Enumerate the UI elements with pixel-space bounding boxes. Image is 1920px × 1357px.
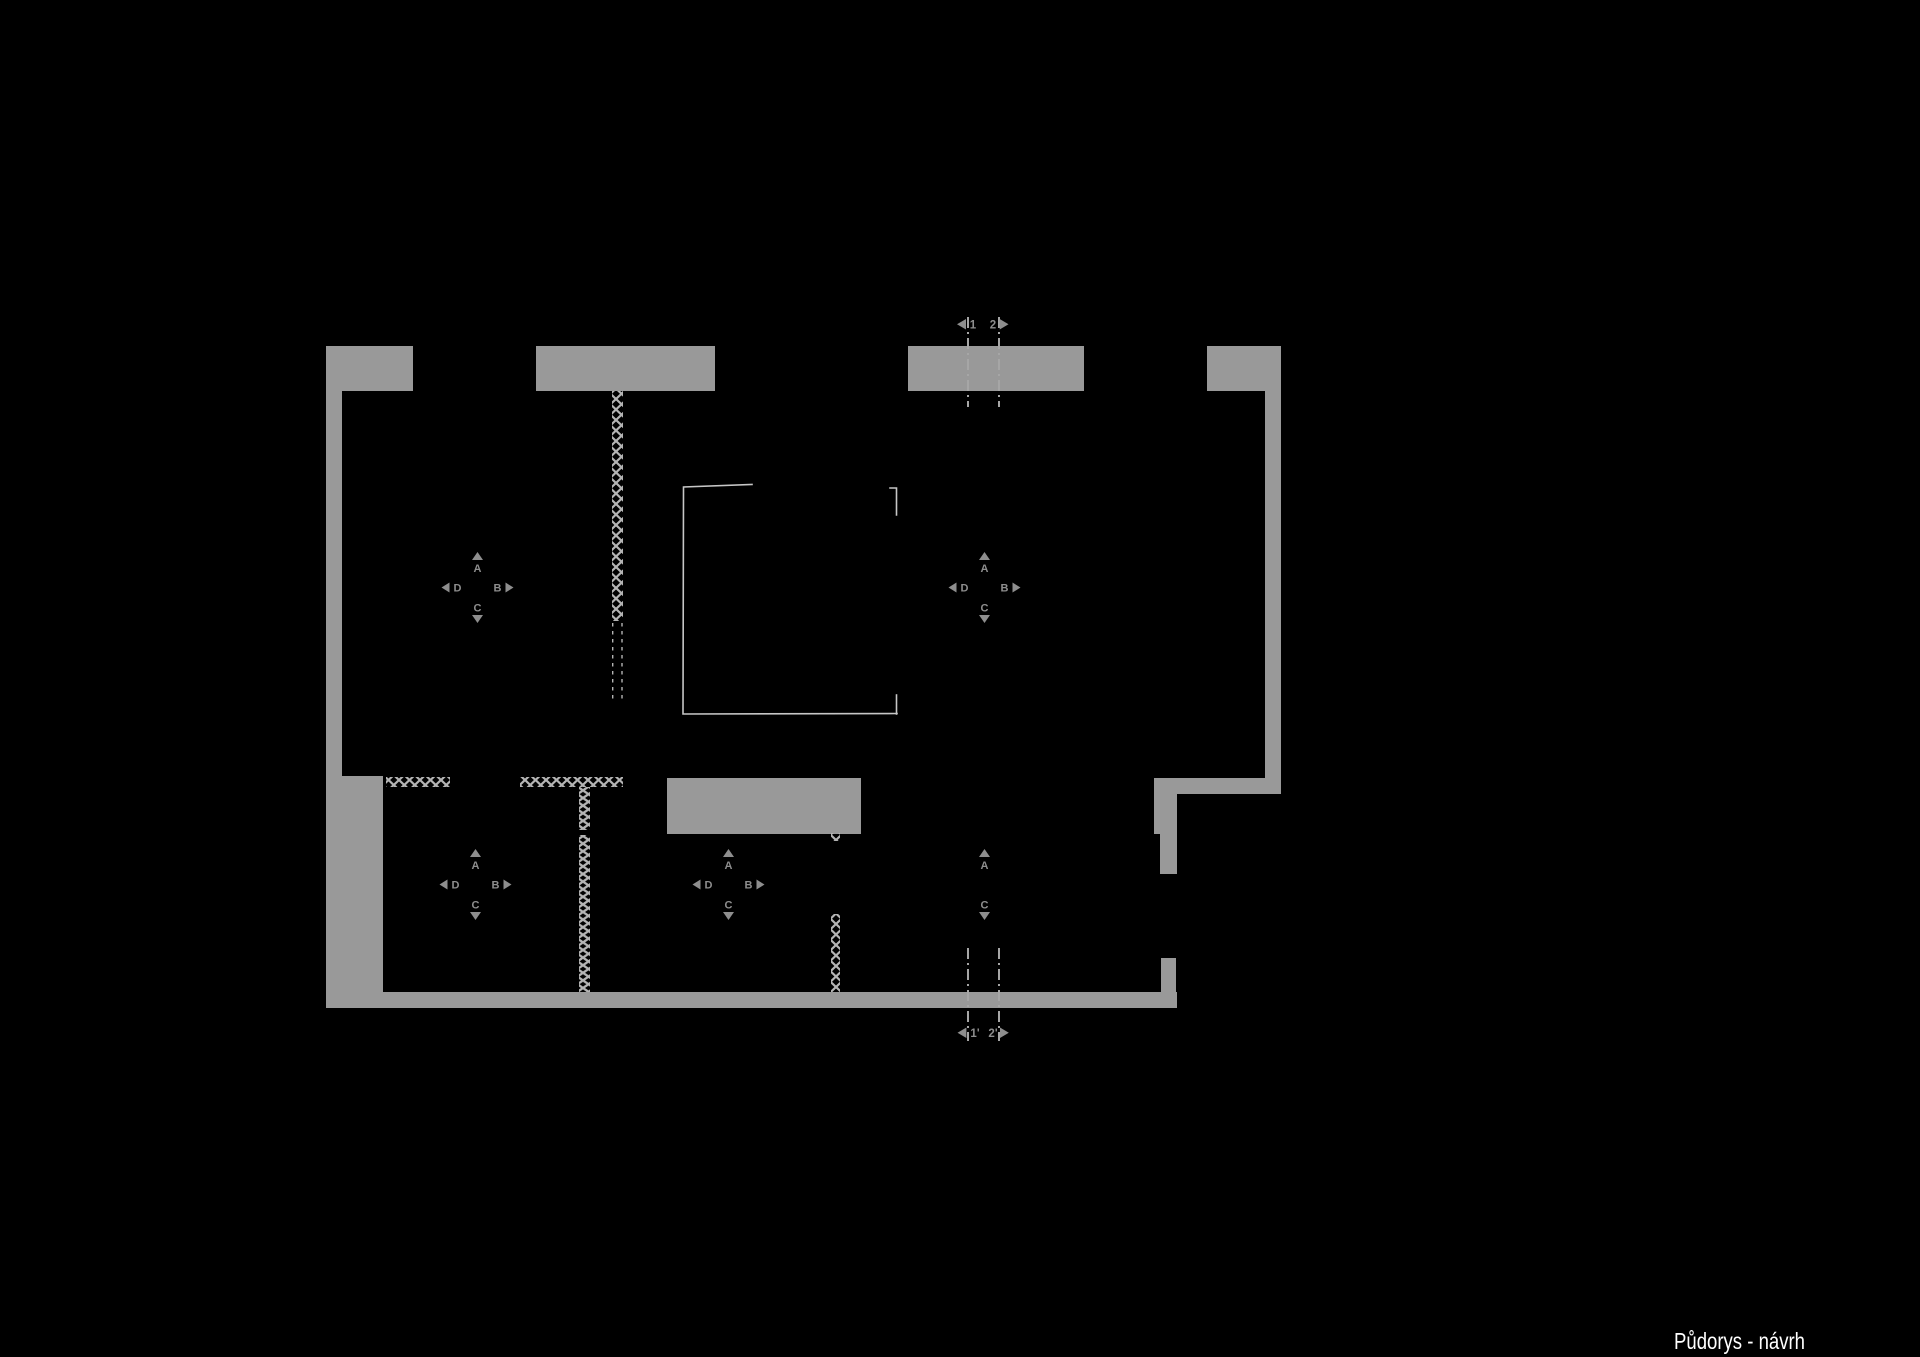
svg-text:C: C xyxy=(981,603,989,615)
svg-text:1: 1 xyxy=(970,320,977,332)
svg-text:1': 1' xyxy=(970,1028,979,1040)
svg-text:A: A xyxy=(981,563,989,575)
svg-text:D: D xyxy=(705,880,713,892)
svg-text:C: C xyxy=(725,900,733,912)
svg-text:2': 2' xyxy=(988,1028,997,1040)
svg-text:C: C xyxy=(981,900,989,912)
svg-text:B: B xyxy=(492,880,500,892)
svg-text:2: 2 xyxy=(990,320,996,332)
svg-text:B: B xyxy=(494,583,502,595)
svg-text:Půdorys - návrh: Půdorys - návrh xyxy=(1674,1328,1805,1354)
svg-text:D: D xyxy=(454,583,462,595)
svg-text:D: D xyxy=(961,583,969,595)
svg-text:D: D xyxy=(452,880,460,892)
svg-text:A: A xyxy=(474,563,482,575)
svg-text:A: A xyxy=(725,860,733,872)
svg-text:B: B xyxy=(1001,583,1009,595)
svg-text:A: A xyxy=(472,860,480,872)
svg-text:C: C xyxy=(472,900,480,912)
svg-text:B: B xyxy=(745,880,753,892)
svg-text:C: C xyxy=(474,603,482,615)
svg-text:A: A xyxy=(981,860,989,872)
